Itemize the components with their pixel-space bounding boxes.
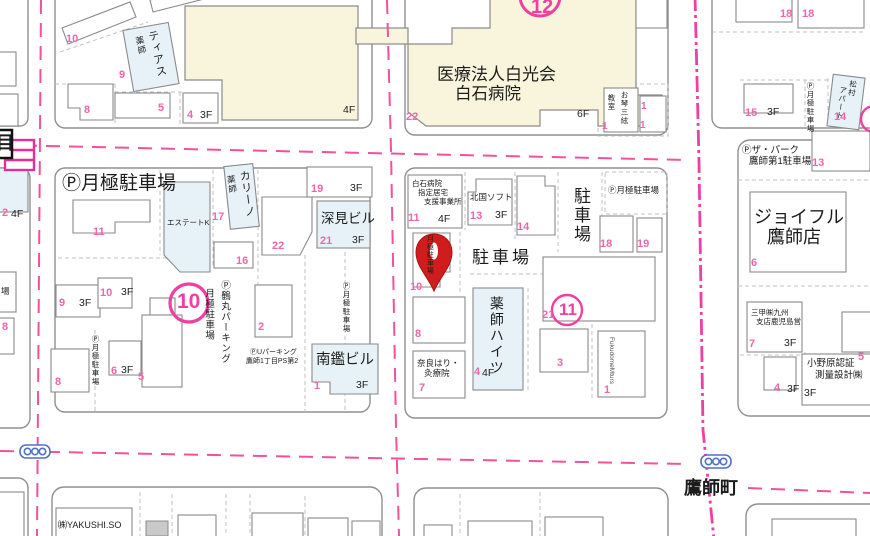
bldg-number: 15 [745, 108, 757, 120]
bldg-number: 8 [2, 322, 8, 334]
bldg-number: 13 [812, 158, 824, 170]
yakushi-heights-name: 薬師ハイツ [489, 296, 504, 376]
joyful-store-name2: 鷹師店 [767, 228, 821, 247]
bldg-number: 21 [320, 236, 332, 248]
estate-k-name: エステートK [167, 219, 210, 227]
floor-label: 4F [482, 368, 494, 379]
nankan-bldg-name: 南鑑ビル [316, 353, 374, 368]
bldg-number: 22 [406, 112, 418, 124]
bldg-number: 10 [66, 34, 78, 46]
fukami-bldg-name: 深見ビル [321, 212, 375, 226]
bldg-number: 4 [774, 383, 780, 395]
bldg-number: 18 [802, 9, 814, 21]
floor-label: 3F [200, 110, 212, 121]
chome-label: 目 [0, 134, 14, 153]
circled-number-11: 11 [559, 301, 577, 319]
kitaguni-soft-name: 北国ソフト [470, 193, 513, 202]
tsurumaru-parking-name2: 月極駐車場 [203, 288, 213, 341]
bldg-number: 7 [749, 339, 755, 351]
yakushiso-name: ㈱YAKUSHI.SO [58, 521, 121, 531]
care-office-name: 白石病院 [412, 180, 442, 188]
floor-label: 4F [343, 105, 355, 116]
bldg-number: 4 [474, 367, 480, 379]
bldg-number: 1 [641, 102, 647, 113]
joyful-store-name: ジョイフル [754, 208, 844, 227]
bldg-number: 2 [258, 322, 264, 334]
hospital-name: 白石病院 [455, 86, 521, 103]
bldg-number: 19 [637, 239, 649, 251]
bldg-number: 17 [212, 212, 224, 224]
bldg-number: 5 [138, 372, 144, 384]
bldg-number: 5 [858, 352, 864, 364]
bldg-number: 8 [55, 377, 61, 389]
bldg-number: 4 [187, 110, 193, 122]
floor-label: 3F [804, 388, 816, 399]
bldg-number: 8 [84, 105, 90, 117]
bldg-number: 14 [834, 112, 846, 124]
bldg-number: 11 [93, 227, 105, 239]
cutoff-parking-char: 場 [1, 287, 10, 296]
sanko-office-name2: 支店鹿児島営 [756, 318, 801, 326]
bldg-number: 10 [100, 288, 112, 300]
parking-lot-label: 駐車場 [571, 187, 589, 244]
bldg-number: 22 [272, 241, 284, 253]
u-parking-name: ⓅUパーキング [250, 349, 297, 356]
floor-label: 3F [356, 380, 368, 391]
bldg-number: 2 [2, 208, 8, 220]
monthly-parking-label: Ⓟ月極駐車場 [608, 186, 659, 195]
fukudome-name: FukudomeMturs [607, 337, 614, 384]
sky-bridge [356, 28, 408, 44]
bldg-number: 16 [236, 256, 248, 268]
monthly-parking-header: Ⓟ月極駐車場 [62, 174, 176, 194]
parking-lot-label: 駐車場 [472, 249, 532, 267]
bldg-number: 1 [602, 122, 608, 133]
circled-number-12: 12 [531, 0, 553, 18]
map-canvas[interactable]: 10 ティアス 薬師 9 8 5 4 3F 4F 12 医療法人白光会 白石病院… [0, 0, 870, 536]
bldg-number: 18 [780, 9, 792, 21]
small-gray-structure [146, 521, 168, 536]
pin-building-label: 月極駐車場 [426, 235, 433, 275]
nara-clinic-name2: 灸療院 [424, 369, 450, 378]
floor-label: 3F [121, 365, 133, 376]
bldg-number: 1 [604, 385, 610, 397]
floor-label: 3F [767, 107, 779, 118]
bldg-number: 6 [751, 258, 757, 270]
floor-label: 3F [787, 384, 799, 395]
bldg-number: 9 [59, 298, 65, 310]
sanko-office-name: 三甲㈱九州 [751, 309, 789, 317]
bldg-number: 21 [542, 310, 554, 322]
bldg-number: 14 [517, 222, 529, 234]
map-geometry [0, 0, 870, 536]
floor-label: 3F [784, 338, 796, 349]
bldg-number: 1 [640, 121, 646, 132]
bldg-number: 8 [415, 329, 421, 341]
onohara-survey-name2: 測量設計㈱ [815, 371, 863, 381]
circled-number-10: 10 [177, 291, 200, 313]
matsumura-apart-name: 松村 [847, 80, 857, 98]
monthly-parking-label: Ⓟ月極駐車場 [806, 82, 814, 133]
floor-label: 3F [352, 235, 364, 246]
nara-clinic-name: 奈良はり・ [417, 359, 460, 368]
bldg-number: 6 [111, 366, 117, 378]
koto-classroom-name: お琴三絃 [620, 91, 628, 125]
bldg-number: 3 [557, 358, 563, 370]
bldg-number: 11 [408, 213, 420, 225]
bldg-number: 13 [470, 211, 482, 223]
u-parking-name2: 鷹師1丁目PS第2 [246, 358, 298, 365]
bldg-number: 7 [419, 383, 425, 395]
monthly-parking-label: Ⓟ月極駐車場 [91, 335, 99, 386]
floor-label: 3F [350, 183, 362, 194]
floor-label: 4F [11, 209, 23, 220]
traffic-signal-icon [20, 445, 731, 468]
onohara-survey-name: 小野原認証 [807, 359, 855, 369]
bldg-number: 5 [158, 103, 164, 115]
hospital-owner: 医療法人白光会 [437, 66, 556, 84]
the-park-name: Ⓟザ・パーク [742, 146, 799, 156]
bldg-number: 18 [600, 239, 612, 251]
care-office-name2: 指定居宅 [418, 189, 448, 197]
bldg-number: 10 [410, 282, 422, 294]
floor-label: 3F [79, 298, 91, 309]
intersection-name: 鷹師町 [684, 479, 738, 498]
bldg-number: 1 [314, 381, 320, 393]
carino-yakushi-name2: 薬師 [226, 174, 238, 194]
the-park-name2: 鷹師第1駐車場 [749, 157, 811, 167]
care-office-name3: 支援事業所 [424, 198, 462, 206]
bldg-number: 19 [311, 184, 323, 196]
koto-classroom-name2: 教室 [607, 94, 615, 111]
floor-label: 3F [121, 287, 133, 298]
bldg-number: 9 [119, 70, 125, 82]
tsurumaru-parking-name: Ⓟ鶴丸パーキング [219, 280, 229, 364]
floor-label: 6F [577, 109, 589, 120]
monthly-parking-label: Ⓟ月極駐車場 [342, 282, 350, 333]
floor-label: 4F [438, 214, 450, 225]
floor-label: 3F [495, 210, 507, 221]
